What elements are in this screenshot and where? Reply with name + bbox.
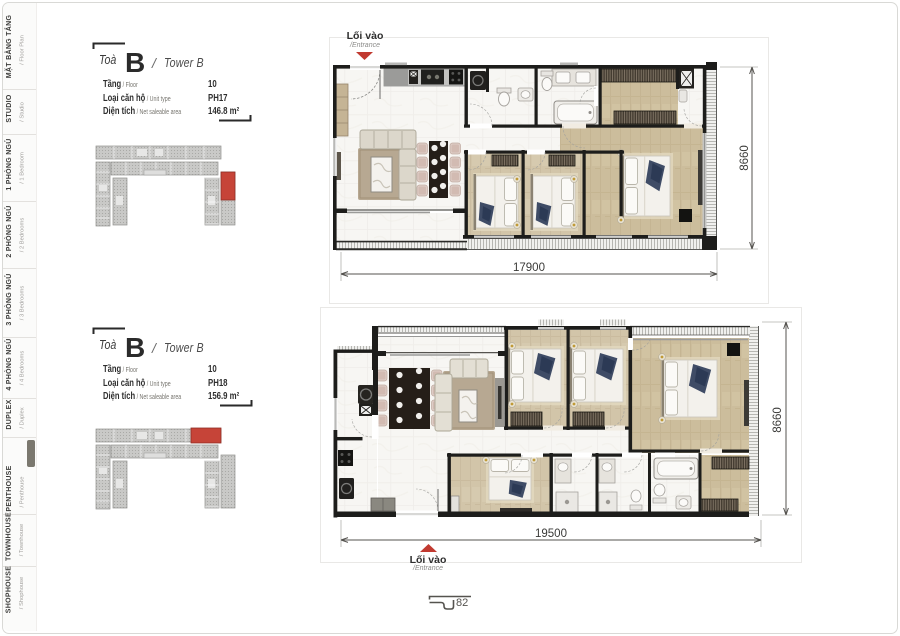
svg-text:8660: 8660 <box>739 145 751 171</box>
svg-text:8660: 8660 <box>772 407 784 433</box>
svg-text:17900: 17900 <box>513 262 545 274</box>
svg-text:19500: 19500 <box>535 528 567 540</box>
